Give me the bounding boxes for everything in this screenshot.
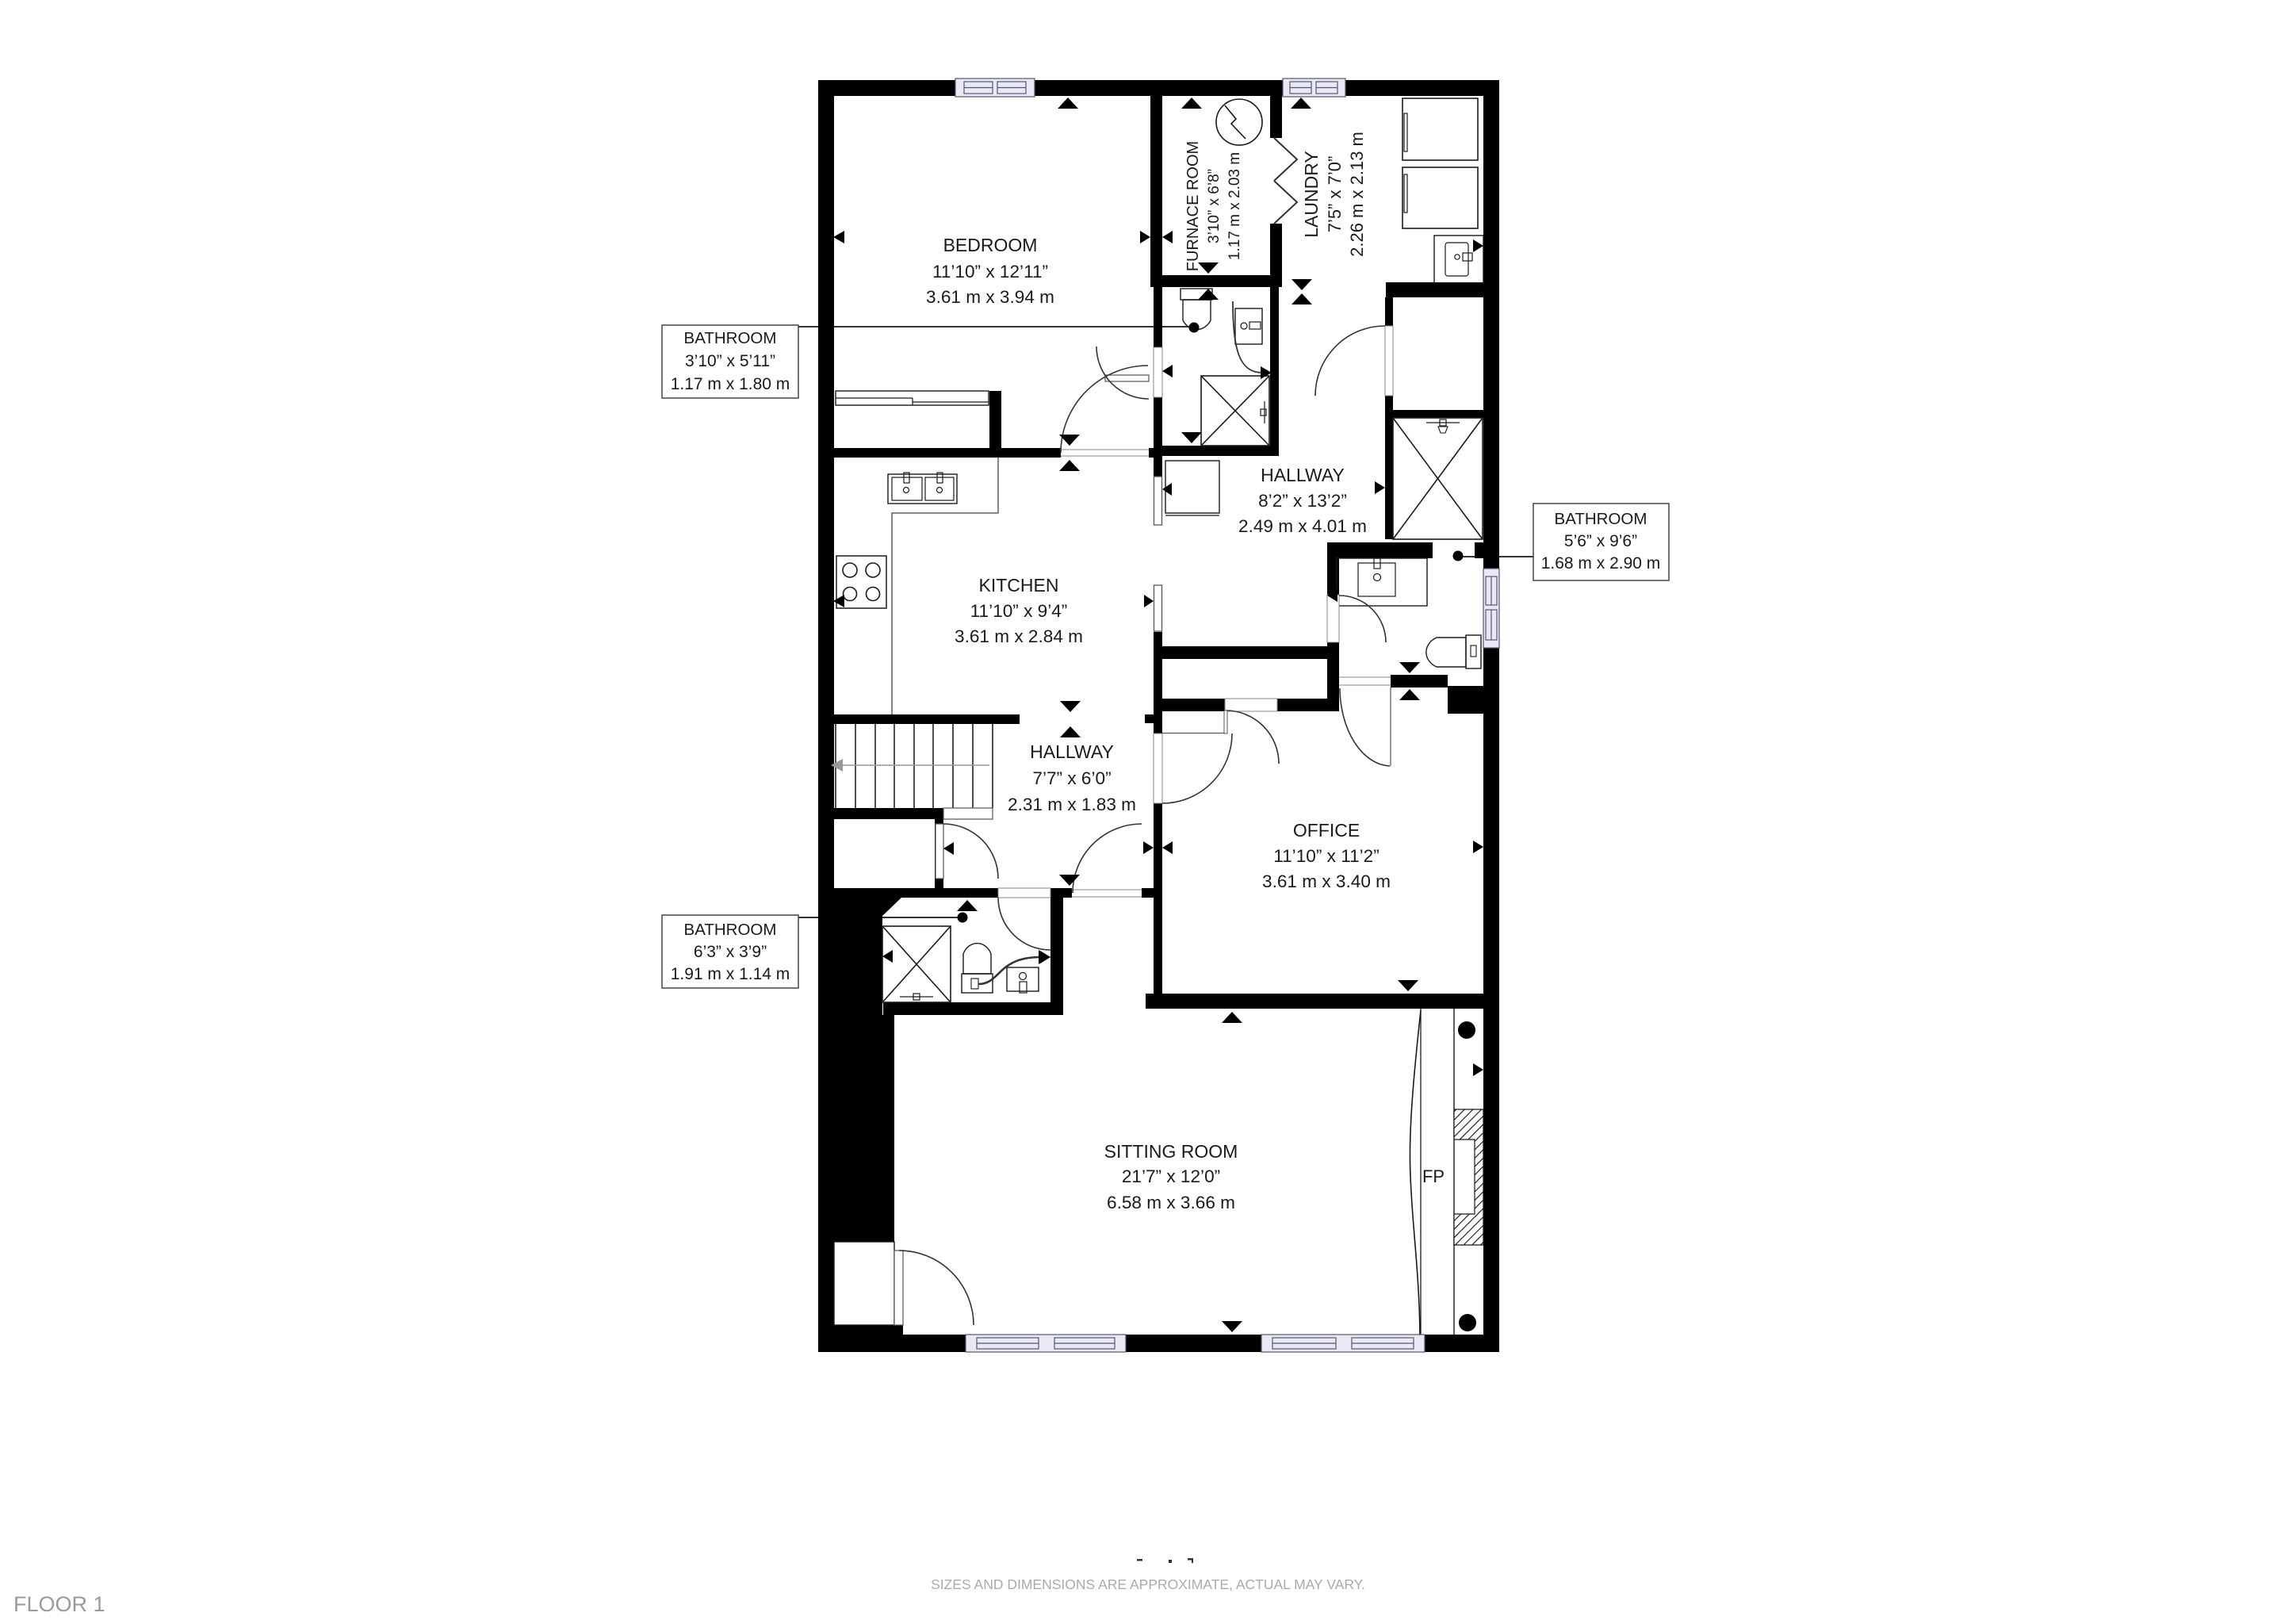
- svg-text:3’10” x 6’8”: 3’10” x 6’8”: [1206, 169, 1223, 243]
- svg-text:3’10” x 5’11”: 3’10” x 5’11”: [685, 352, 775, 370]
- svg-text:FLOOR 1: FLOOR 1: [13, 1592, 105, 1616]
- svg-text:2.26 m x 2.13 m: 2.26 m x 2.13 m: [1347, 132, 1367, 257]
- svg-text:OFFICE: OFFICE: [1293, 820, 1360, 841]
- svg-text:FURNACE ROOM: FURNACE ROOM: [1184, 141, 1202, 271]
- svg-text:3.61 m x 3.94 m: 3.61 m x 3.94 m: [926, 287, 1054, 307]
- svg-text:SIZES AND DIMENSIONS ARE APPRO: SIZES AND DIMENSIONS ARE APPROXIMATE, AC…: [931, 1576, 1365, 1592]
- svg-text:7’5” x 7’0”: 7’5” x 7’0”: [1325, 156, 1345, 233]
- svg-text:HALLWAY: HALLWAY: [1261, 465, 1345, 485]
- svg-text:BEDROOM: BEDROOM: [943, 235, 1038, 255]
- svg-text:1.91 m x 1.14 m: 1.91 m x 1.14 m: [671, 965, 790, 983]
- svg-text:BATHROOM: BATHROOM: [1555, 510, 1647, 528]
- svg-text:3.61 m x 3.40 m: 3.61 m x 3.40 m: [1262, 871, 1391, 891]
- svg-text:HALLWAY: HALLWAY: [1030, 741, 1114, 762]
- svg-text:LAUNDRY: LAUNDRY: [1301, 151, 1322, 238]
- svg-text:11’10” x 12’11”: 11’10” x 12’11”: [932, 262, 1048, 282]
- svg-text:21’7” x 12’0”: 21’7” x 12’0”: [1122, 1166, 1220, 1186]
- svg-text:1.17 m x 1.80 m: 1.17 m x 1.80 m: [671, 375, 790, 393]
- svg-text:11’10” x 9’4”: 11’10” x 9’4”: [970, 601, 1068, 621]
- svg-text:KITCHEN: KITCHEN: [979, 575, 1059, 596]
- svg-text:BATHROOM: BATHROOM: [684, 921, 777, 939]
- svg-text:8’2” x 13’2”: 8’2” x 13’2”: [1258, 491, 1347, 511]
- svg-text:2.31 m x 1.83 m: 2.31 m x 1.83 m: [1008, 795, 1136, 814]
- svg-text:5’6” x 9’6”: 5’6” x 9’6”: [1564, 532, 1637, 550]
- svg-text:6’3” x 3’9”: 6’3” x 3’9”: [694, 943, 767, 961]
- svg-text:3.61 m x 2.84 m: 3.61 m x 2.84 m: [955, 626, 1083, 646]
- svg-text:1.17 m x 2.03 m: 1.17 m x 2.03 m: [1226, 152, 1243, 260]
- svg-text:FP: FP: [1422, 1166, 1445, 1186]
- svg-text:SITTING ROOM: SITTING ROOM: [1104, 1141, 1238, 1162]
- svg-text:6.58 m x 3.66 m: 6.58 m x 3.66 m: [1107, 1193, 1235, 1212]
- svg-text:2.49 m x 4.01 m: 2.49 m x 4.01 m: [1238, 516, 1367, 536]
- svg-text:BATHROOM: BATHROOM: [684, 329, 777, 347]
- svg-text:11’10” x 11’2”: 11’10” x 11’2”: [1273, 846, 1380, 866]
- svg-text:1.68 m x 2.90 m: 1.68 m x 2.90 m: [1541, 554, 1661, 573]
- svg-text:7’7” x 6’0”: 7’7” x 6’0”: [1032, 768, 1111, 788]
